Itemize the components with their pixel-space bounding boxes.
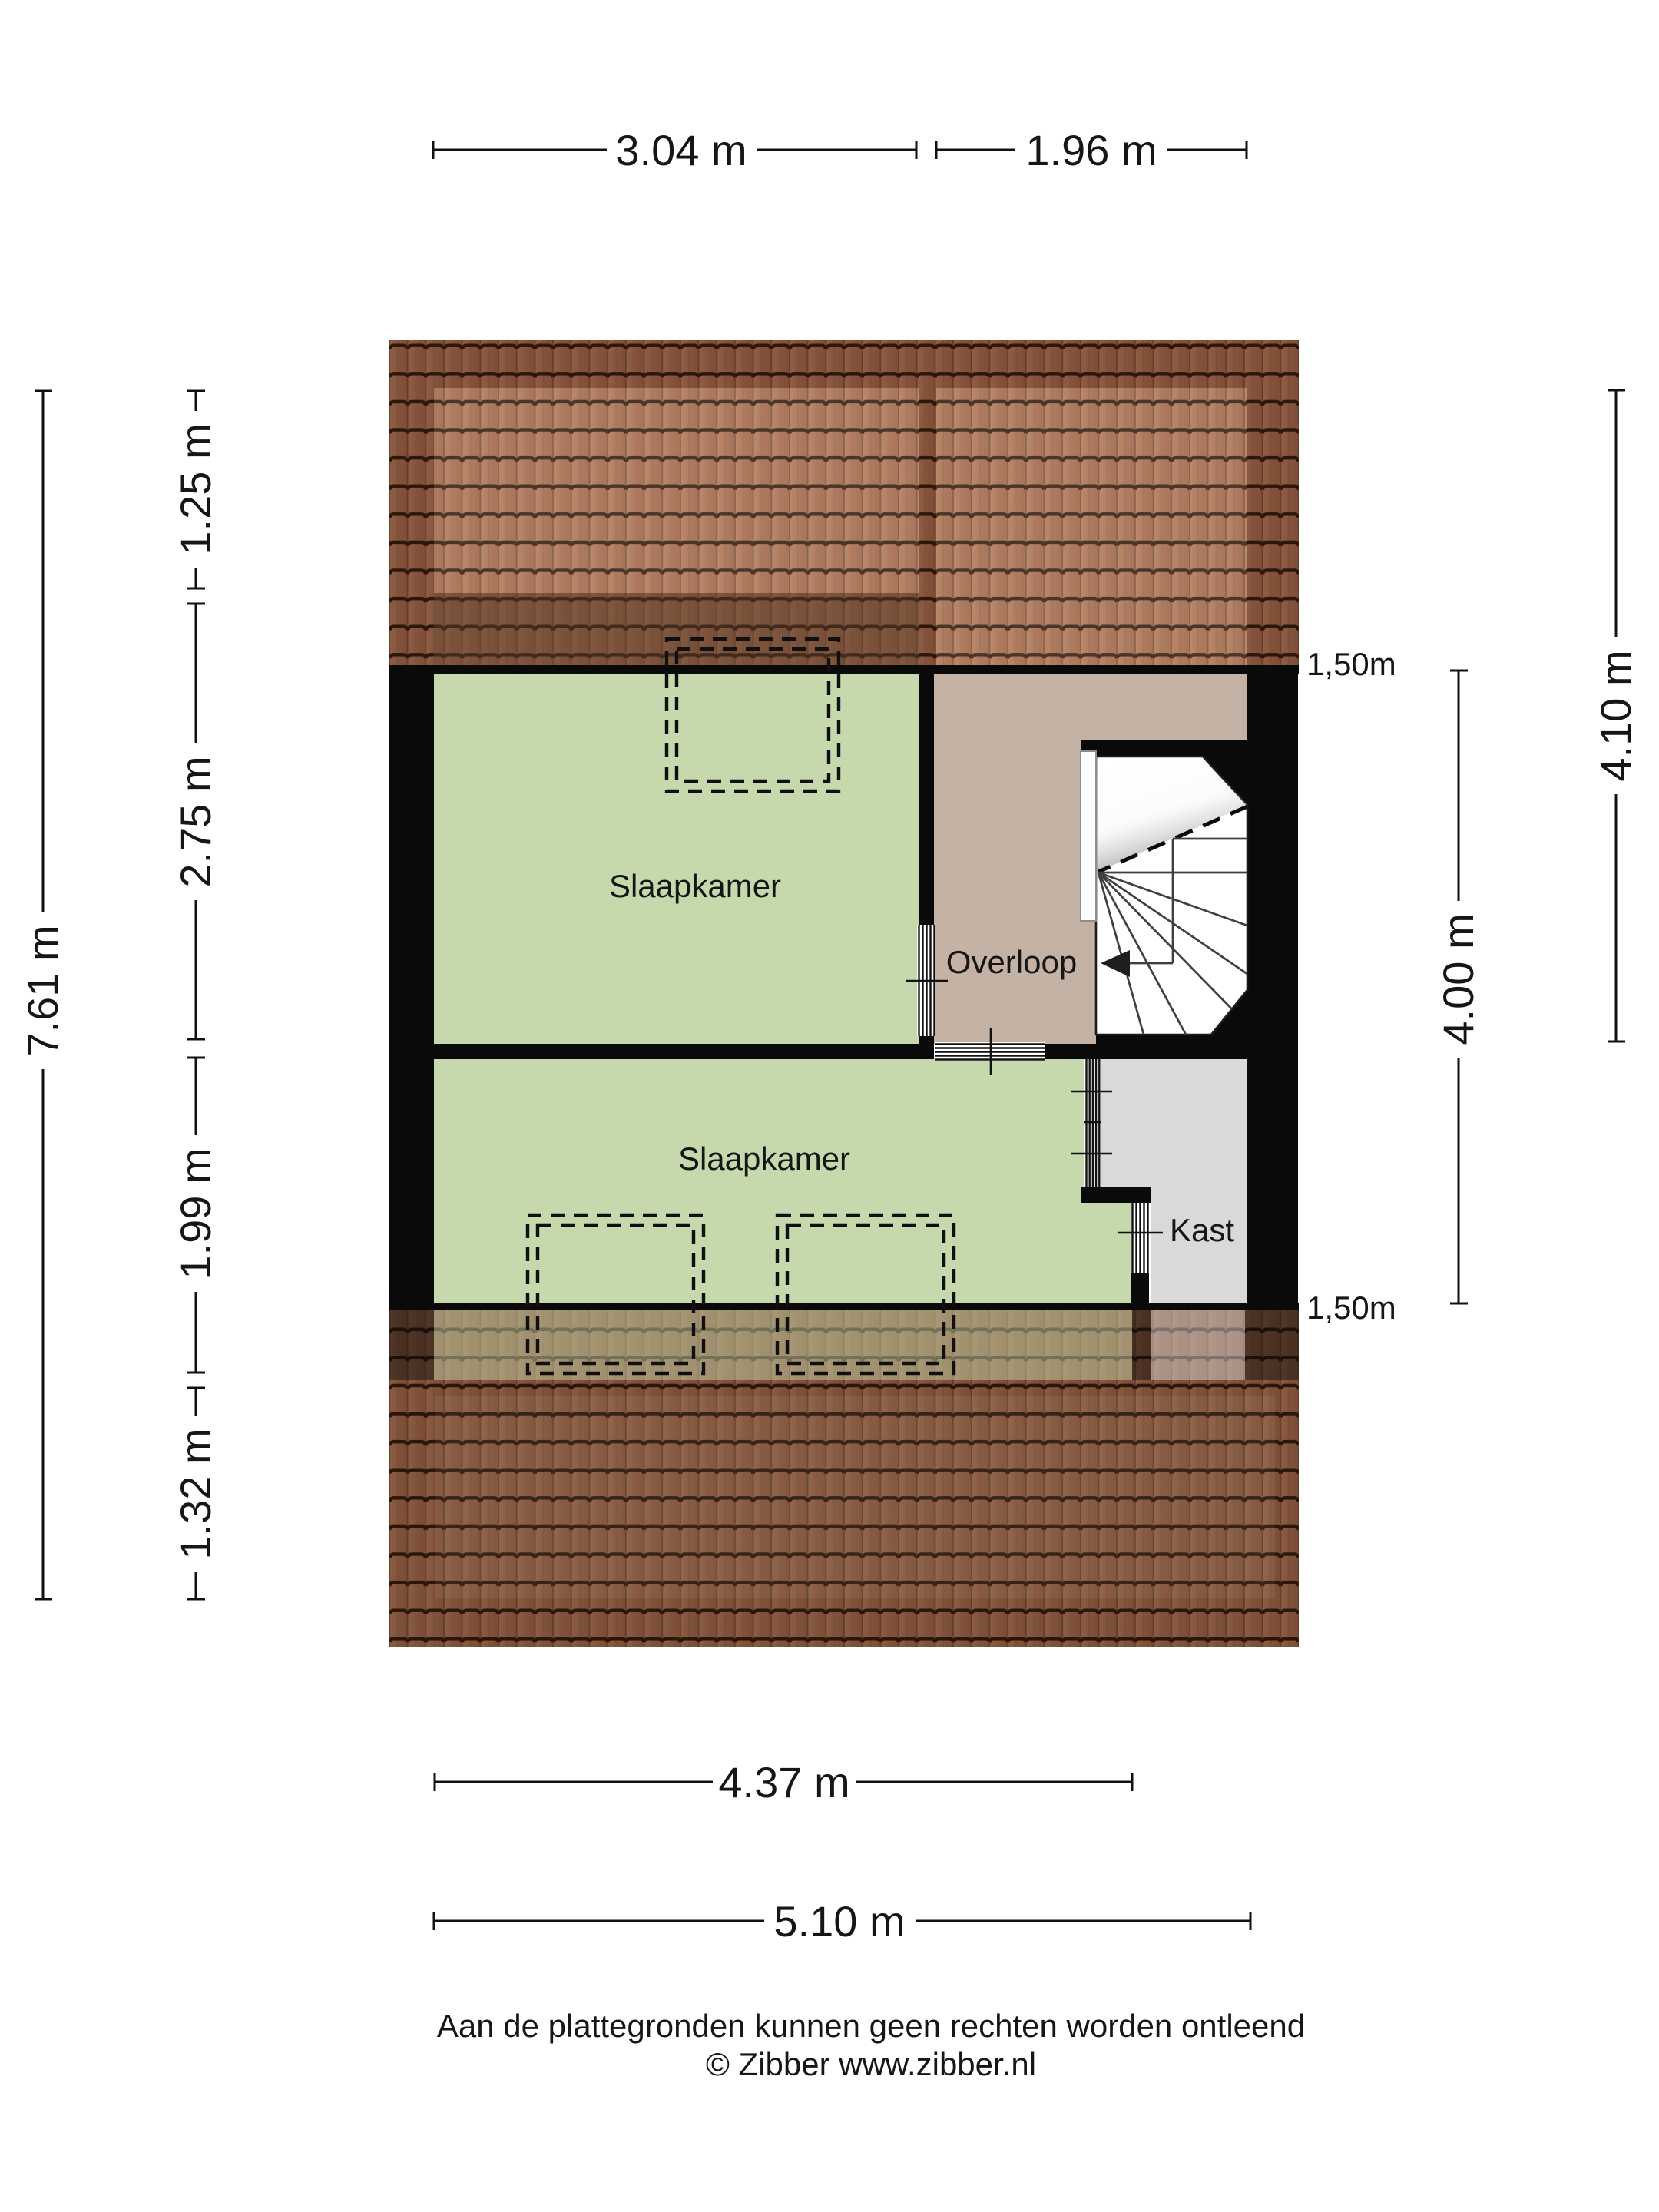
svg-text:1,50m: 1,50m	[1306, 1290, 1396, 1326]
svg-text:5.10 m: 5.10 m	[773, 1897, 905, 1945]
svg-text:4.37 m: 4.37 m	[718, 1758, 849, 1806]
svg-text:Slaapkamer: Slaapkamer	[678, 1141, 850, 1177]
svg-text:1.25 m: 1.25 m	[171, 423, 220, 555]
svg-text:1.99 m: 1.99 m	[171, 1147, 220, 1279]
svg-text:1,50m: 1,50m	[1306, 646, 1396, 682]
svg-text:3.04 m: 3.04 m	[615, 126, 747, 174]
svg-text:1.96 m: 1.96 m	[1025, 126, 1157, 174]
svg-text:Overloop: Overloop	[946, 944, 1077, 980]
svg-text:4.00 m: 4.00 m	[1434, 913, 1482, 1045]
svg-text:1.32 m: 1.32 m	[171, 1428, 220, 1559]
svg-text:2.75 m: 2.75 m	[171, 756, 220, 887]
svg-text:7.61 m: 7.61 m	[18, 925, 67, 1056]
svg-text:Kast: Kast	[1170, 1212, 1234, 1248]
svg-text:Aan de plattegronden kunnen ge: Aan de plattegronden kunnen geen rechten…	[437, 2008, 1305, 2044]
svg-text:4.10 m: 4.10 m	[1591, 650, 1640, 781]
svg-text:© Zibber www.zibber.nl: © Zibber www.zibber.nl	[706, 2046, 1036, 2082]
svg-text:Slaapkamer: Slaapkamer	[609, 868, 781, 904]
